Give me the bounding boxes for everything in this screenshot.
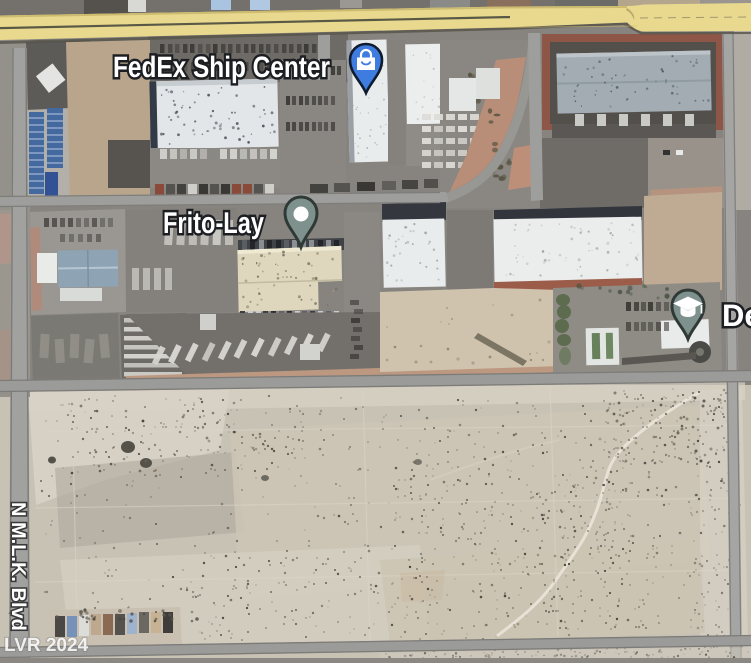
svg-text:N M.L.K. Blvd: N M.L.K. Blvd	[7, 502, 29, 631]
svg-text:LVR 2024: LVR 2024	[4, 635, 89, 656]
svg-text:De: De	[722, 298, 751, 333]
svg-text:Frito-Lay: Frito-Lay	[163, 207, 264, 240]
svg-text:FedEx Ship Center: FedEx Ship Center	[113, 51, 330, 84]
